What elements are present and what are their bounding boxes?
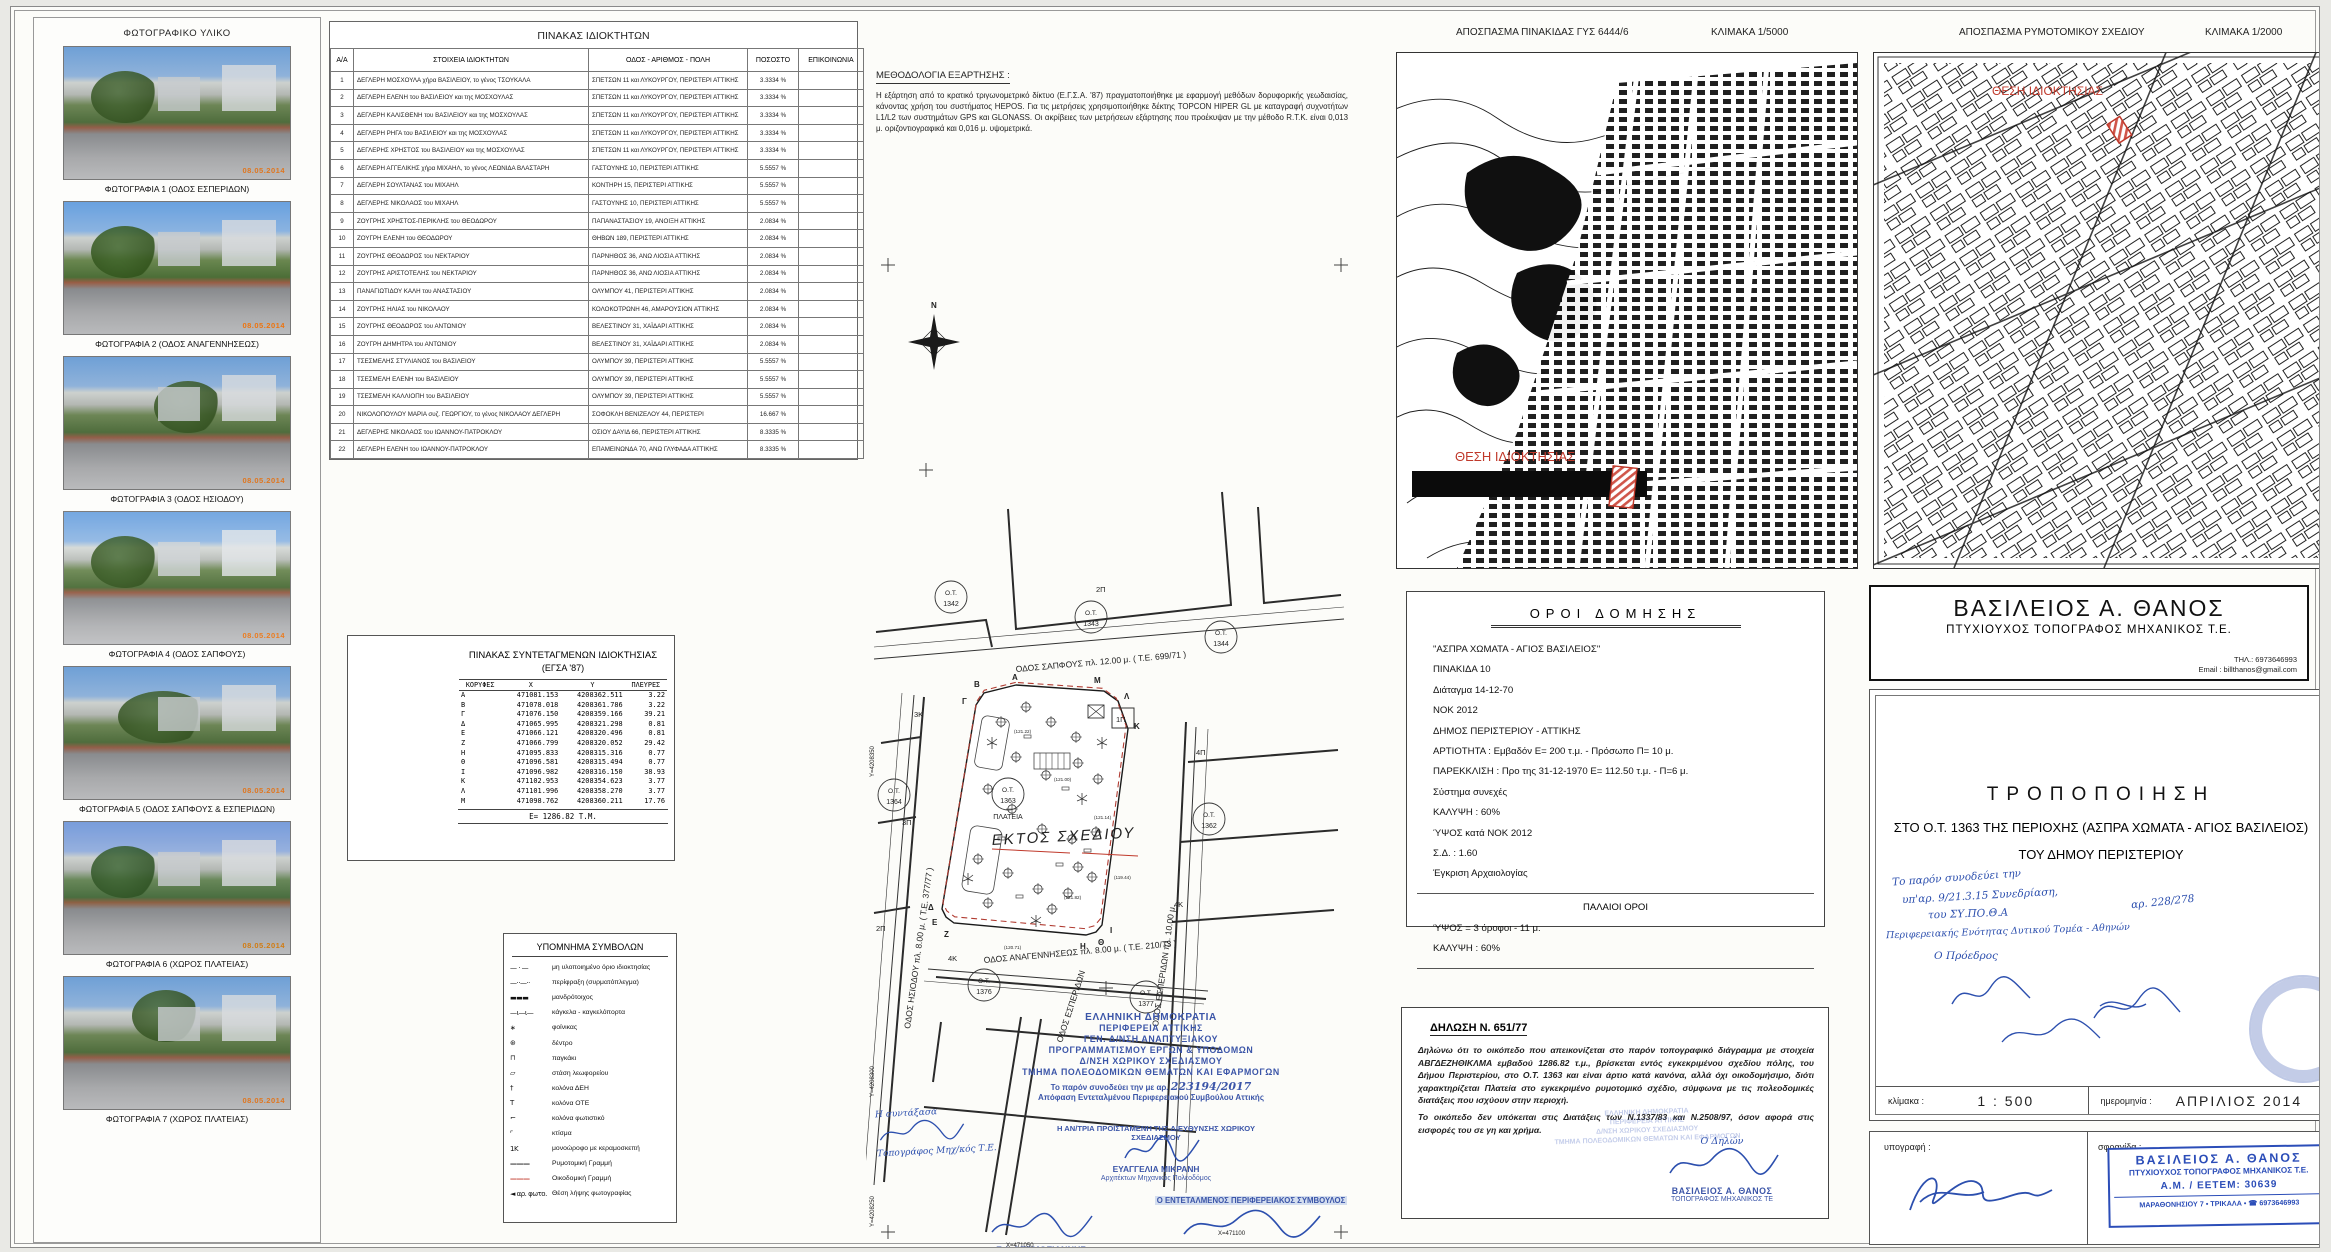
north-arrow-icon: Ν xyxy=(908,301,960,370)
declarant-signature xyxy=(1662,1147,1782,1181)
terms-line: ΑΡΤΙΟΤΗΤΑ : Εμβαδόν Ε= 200 τ.μ. - Πρόσωπ… xyxy=(1407,742,1824,762)
vertex-letter: Ε xyxy=(459,729,501,739)
legend-symbol-icon: — · — xyxy=(510,964,552,972)
svg-text:4Π: 4Π xyxy=(1196,748,1206,757)
svg-text:1342: 1342 xyxy=(943,601,959,608)
photo-date-stamp: 08.05.2014 xyxy=(242,321,285,330)
vertex-letter: Δ xyxy=(459,720,501,730)
director-name: ΕΥΑΓΓΕΛΙΑ ΜΙΚΡΑΝΗ xyxy=(1066,1164,1246,1174)
drawing-subtitle-1: ΣΤΟ Ο.Τ. 1363 ΤΗΣ ΠΕΡΙΟΧΗΣ (ΑΣΠΡΑ ΧΩΜΑΤΑ… xyxy=(1876,820,2320,835)
vertex-x: 471078.018 xyxy=(501,701,560,711)
svg-text:1377: 1377 xyxy=(1138,1001,1154,1008)
coordinate-row: Η 471095.833 4208315.316 0.77 xyxy=(459,749,667,759)
map-townplan-extract: ΘΕΣΗ ΙΔΙΟΚΤΗΣΙΑΣ xyxy=(1873,52,2320,569)
owner-name: ΤΣΕΣΜΕΛΗΣ ΣΤΥΛΙΑΝΟΣ του ΒΑΣΙΛΕΙΟΥ xyxy=(354,353,589,371)
photo-image: 08.05.2014 xyxy=(63,46,291,180)
svg-text:Β: Β xyxy=(974,680,980,689)
legend-item: ⊛ δέντρο xyxy=(504,1035,676,1050)
methodology-title: ΜΕΘΟΔΟΛΟΓΙΑ ΕΞΑΡΤΗΣΗΣ : xyxy=(876,70,1010,84)
legend-symbol-icon: 1Κ xyxy=(510,1145,552,1153)
owner-index: 16 xyxy=(331,335,354,353)
surveyor-signoff: Γ. Ι. ΘΕΡΜΟΓΙΑΝΝΗΣ Αγρονόμος - Τοπογράφο… xyxy=(946,1210,1136,1248)
property-parcel-highlight xyxy=(1609,466,1637,508)
owner-index: 21 xyxy=(331,423,354,441)
svg-text:1362: 1362 xyxy=(1201,823,1217,830)
owner-address: ΓΑΣΤΟΥΝΗΣ 10, ΠΕΡΙΣΤΕΡΙ ΑΤΤΙΚΗΣ xyxy=(589,195,748,213)
vertex-side: 17.76 xyxy=(625,797,667,807)
vertex-x: 471081.153 xyxy=(501,691,560,701)
owner-name: ΝΙΚΟΛΟΠΟΥΛΟΥ ΜΑΡΙΑ συζ. ΓΕΩΡΓΙΟΥ, το γέν… xyxy=(354,406,589,424)
vertex-side: 3.22 xyxy=(625,691,667,701)
owner-contact xyxy=(799,159,864,177)
photo-caption: ΦΩΤΟΓΡΑΦΙΑ 4 (ΟΔΟΣ ΣΑΠΦΟΥΣ) xyxy=(63,649,291,659)
owner-address: ΘΗΒΩΝ 189, ΠΕΡΙΣΤΕΡΙ ΑΤΤΙΚΗΣ xyxy=(589,230,748,248)
legend-label: κολόνα φωτιστικό xyxy=(552,1115,605,1122)
vertex-x: 471096.982 xyxy=(501,768,560,778)
declaration-panel: ΔΗΛΩΣΗ Ν. 651/77 Δηλώνω ότι το οικόπεδο … xyxy=(1401,1007,1829,1219)
terms-line: ΔΗΜΟΣ ΠΕΡΙΣΤΕΡΙΟΥ - ΑΤΤΙΚΗΣ xyxy=(1407,722,1824,742)
vertex-x: 471096.581 xyxy=(501,758,560,768)
owner-name: ΖΟΥΓΡΗΣ ΘΕΟΔΩΡΟΣ του ΝΕΚΤΑΡΙΟΥ xyxy=(354,247,589,265)
svg-text:Υ=4208300: Υ=4208300 xyxy=(870,1065,876,1097)
legend-symbol-icon: ∗ xyxy=(510,1024,552,1032)
owner-contact xyxy=(799,371,864,389)
engineer-email: Email : billthanos@gmail.com xyxy=(2199,665,2297,675)
table-row: 18 ΤΣΕΣΜΕΛΗ ΕΛΕΝΗ του ΒΑΣΙΛΕΙΟΥ ΟΛΥΜΠΟΥ … xyxy=(331,371,864,389)
legend-item: ∗ φοίνικας xyxy=(504,1020,676,1035)
legend-label: κολόνα ΟΤΕ xyxy=(552,1100,589,1107)
director-title: Αρχιτέκτων Μηχανικός Πολεοδόμος xyxy=(1066,1175,1246,1182)
owner-name: ΔΕΓΛΕΡΗ ΑΓΓΕΛΙΚΗΣ χήρα ΜΙΧΑΗΛ, το γένος … xyxy=(354,159,589,177)
table-row: 14 ΖΟΥΓΡΗΣ ΗΛΙΑΣ του ΝΙΚΟΛΑΟΥ ΚΟΛΟΚΟΤΡΩΝ… xyxy=(331,300,864,318)
svg-text:Ζ: Ζ xyxy=(944,930,949,939)
legend-symbol-icon: ⊛ xyxy=(510,1039,552,1047)
owners-table-title: ΠΙΝΑΚΑΣ ΙΔΙΟΚΤΗΤΩΝ xyxy=(330,22,857,48)
owner-contact xyxy=(799,72,864,90)
owner-name: ΔΕΓΛΕΡΗ ΚΑΛΙΣΘΕΝΗ του ΒΑΣΙΛΕΙΟΥ και της … xyxy=(354,107,589,125)
legend-symbol-icon: ——— xyxy=(510,1160,552,1168)
owner-index: 2 xyxy=(331,89,354,107)
svg-text:ΟΔΟΣ ΣΑΠΦΟΥΣ πλ. 12.00 μ. ( Τ: ΟΔΟΣ ΣΑΠΦΟΥΣ πλ. 12.00 μ. ( Τ.Ε. 699/71 … xyxy=(1015,649,1186,674)
svg-text:(120.71): (120.71) xyxy=(1004,945,1022,950)
building-terms-title: ΟΡΟΙ ΔΟΜΗΣΗΣ xyxy=(1407,606,1824,621)
owner-name: ΔΕΓΛΕΡΗ ΡΗΓΑ του ΒΑΣΙΛΕΙΟΥ και της ΜΟΣΧΟ… xyxy=(354,124,589,142)
handwritten-line: αρ. 228/278 xyxy=(2131,893,2195,912)
owner-contact xyxy=(799,212,864,230)
table-row: 3 ΔΕΓΛΕΡΗ ΚΑΛΙΣΘΕΝΗ του ΒΑΣΙΛΕΙΟΥ και τη… xyxy=(331,107,864,125)
legend-symbol-icon: —ι—ι— xyxy=(510,1009,552,1017)
photo-caption: ΦΩΤΟΓΡΑΦΙΑ 3 (ΟΔΟΣ ΗΣΙΟΔΟΥ) xyxy=(63,494,291,504)
legend-symbol-icon: ⌐ xyxy=(510,1114,552,1122)
table-row: 1 ΔΕΓΛΕΡΗ ΜΟΣΧΟΥΛΑ χήρα ΒΑΣΙΛΕΙΟΥ, το γέ… xyxy=(331,72,864,90)
owner-percentage: 3.3334 % xyxy=(748,124,799,142)
owner-address: ΚΟΛΟΚΟΤΡΩΝΗ 46, ΑΜΑΡΟΥΣΙΟΝ ΑΤΤΙΚΗΣ xyxy=(589,300,748,318)
methodology-panel: ΜΕΘΟΔΟΛΟΓΙΑ ΕΞΑΡΤΗΣΗΣ : Η εξάρτηση από τ… xyxy=(876,65,1348,134)
methodology-text: Η εξάρτηση από το κρατικό τριγωνομετρικό… xyxy=(876,90,1348,134)
svg-text:4Κ: 4Κ xyxy=(1174,900,1183,909)
owner-name: ΖΟΥΓΡΗΣ ΗΛΙΑΣ του ΝΙΚΟΛΑΟΥ xyxy=(354,300,589,318)
owner-address: ΒΕΛΕΣΤΙΝΟΥ 31, ΧΑΪΔΑΡΙ ΑΤΤΙΚΗΣ xyxy=(589,318,748,336)
photo-date-stamp: 08.05.2014 xyxy=(242,476,285,485)
photo-item: 08.05.2014 ΦΩΤΟΓΡΑΦΙΑ 7 (ΧΩΡΟΣ ΠΛΑΤΕΙΑΣ) xyxy=(63,976,291,1124)
legend-symbol-icon: † xyxy=(510,1084,552,1092)
old-terms-title: ΠΑΛΑΙΟΙ ΟΡΟΙ xyxy=(1407,902,1824,913)
legend-item: ⌐ κολόνα φωτιστικό xyxy=(504,1111,676,1126)
photo-caption: ΦΩΤΟΓΡΑΦΙΑ 2 (ΟΔΟΣ ΑΝΑΓΕΝΝΗΣΕΩΣ) xyxy=(63,339,291,349)
owner-contact xyxy=(799,107,864,125)
photo-caption: ΦΩΤΟΓΡΑΦΙΑ 7 (ΧΩΡΟΣ ΠΛΑΤΕΙΑΣ) xyxy=(63,1114,291,1124)
legend-item: ▬▬▬ μανδρότοιχος xyxy=(504,990,676,1005)
vertex-x: 471076.150 xyxy=(501,710,560,720)
director-signature xyxy=(1121,1134,1201,1164)
legend-symbol-icon: ◄ αρ. φωτο. xyxy=(510,1190,552,1198)
owner-index: 10 xyxy=(331,230,354,248)
owner-address: ΣΠΕΤΣΩΝ 11 και ΛΥΚΟΥΡΓΟΥ, ΠΕΡΙΣΤΕΡΙ ΑΤΤΙ… xyxy=(589,89,748,107)
owner-percentage: 8.3335 % xyxy=(748,423,799,441)
photo-image: 08.05.2014 xyxy=(63,356,291,490)
table-row: 10 ΖΟΥΓΡΗ ΕΛΕΝΗ του ΘΕΟΔΩΡΟΥ ΘΗΒΩΝ 189, … xyxy=(331,230,864,248)
declaration-paragraph-1: Δηλώνω ότι το οικόπεδο που απεικονίζεται… xyxy=(1418,1044,1814,1107)
legend-item: —··—·· περίφραξη (συρματόπλεγμα) xyxy=(504,975,676,990)
svg-text:2Π: 2Π xyxy=(876,924,886,933)
svg-text:2Π: 2Π xyxy=(1096,585,1106,594)
parcel-area-total: Ε= 1286.82 Τ.Μ. xyxy=(458,809,668,824)
sheet-frame: ΦΩΤΟΓΡΑΦΙΚΟ ΥΛΙΚΟ 08.05.2014 ΦΩΤΟΓΡΑΦΙΑ … xyxy=(10,6,2320,1248)
legend-symbol-icon: Τ xyxy=(510,1099,552,1107)
scale-date-strip: κλίμακα : 1 : 500 ημερομηνία : ΑΠΡΙΛΙΟΣ … xyxy=(1876,1086,2320,1114)
approval-line: ΕΛΛΗΝΙΚΗ ΔΗΜΟΚΡΑΤΙΑ xyxy=(946,1012,1356,1023)
approval-line: ΠΡΟΓΡΑΜΜΑΤΙΣΜΟΥ ΕΡΓΩΝ & ΥΠΟΔΟΜΩΝ xyxy=(946,1045,1356,1056)
owner-percentage: 5.5557 % xyxy=(748,177,799,195)
legend-item: ▱ στάση λεωφορείου xyxy=(504,1066,676,1081)
owner-name: ΖΟΥΓΡΗ ΔΗΜΗΤΡΑ του ΑΝΤΩΝΙΟΥ xyxy=(354,335,589,353)
owner-contact xyxy=(799,124,864,142)
svg-text:Ο.Τ.: Ο.Τ. xyxy=(888,788,900,795)
legend-item: ◄ αρ. φωτο. Θέση λήψης φωτογραφίας xyxy=(504,1186,676,1201)
svg-text:Κ: Κ xyxy=(1134,722,1140,731)
vertex-side: 0.81 xyxy=(625,729,667,739)
svg-text:Ο.Τ.: Ο.Τ. xyxy=(978,978,990,985)
owner-address: ΟΛΥΜΠΟΥ 41, ΠΕΡΙΣΤΕΡΙ ΑΤΤΙΚΗΣ xyxy=(589,283,748,301)
photo-date-stamp: 08.05.2014 xyxy=(242,631,285,640)
drawing-title: ΤΡΟΠΟΠΟΙΗΣΗ xyxy=(1876,784,2320,806)
table-row: 13 ΠΑΝΑΓΙΩΤΙΔΟΥ ΚΑΛΗ του ΑΝΑΣΤΑΣΙΟΥ ΟΛΥΜ… xyxy=(331,283,864,301)
owner-percentage: 2.0834 % xyxy=(748,318,799,336)
svg-text:4Κ: 4Κ xyxy=(948,954,957,963)
owner-index: 19 xyxy=(331,388,354,406)
owner-name: ΔΕΓΛΕΡΗ ΣΟΥΛΤΑΝΑΣ του ΜΙΧΑΗΛ xyxy=(354,177,589,195)
legend-symbol-icon: —··—·· xyxy=(510,979,552,987)
owner-contact xyxy=(799,177,864,195)
owner-contact xyxy=(799,230,864,248)
owner-contact xyxy=(799,318,864,336)
vertex-x: 471095.833 xyxy=(501,749,560,759)
table-row: 11 ΖΟΥΓΡΗΣ ΘΕΟΔΩΡΟΣ του ΝΕΚΤΑΡΙΟΥ ΠΑΡΝΗΘ… xyxy=(331,247,864,265)
col-header-percentage: ΠΟΣΟΣΤΟ xyxy=(748,49,799,72)
owner-contact xyxy=(799,388,864,406)
photo-image: 08.05.2014 xyxy=(63,666,291,800)
legend-item: 1Κ μονοώροφο με κεραμοσκεπή xyxy=(504,1141,676,1156)
legend-item: — · — μη υλοποιημένο όριο ιδιοκτησίας xyxy=(504,960,676,975)
owner-percentage: 5.5557 % xyxy=(748,195,799,213)
vertex-y: 4208320.052 xyxy=(560,739,624,749)
photo-list: 08.05.2014 ΦΩΤΟΓΡΑΦΙΑ 1 (ΟΔΟΣ ΕΣΠΕΡΙΔΩΝ)… xyxy=(34,46,320,1124)
col-header-owner: ΣΤΟΙΧΕΙΑ ΙΔΙΟΚΤΗΤΩΝ xyxy=(354,49,589,72)
owner-contact xyxy=(799,195,864,213)
svg-text:(121.00): (121.00) xyxy=(1054,777,1072,782)
svg-text:1363: 1363 xyxy=(1000,798,1016,805)
parcel-outline xyxy=(942,682,1128,935)
owner-index: 22 xyxy=(331,441,354,459)
owner-index: 17 xyxy=(331,353,354,371)
svg-text:Υ=4208350: Υ=4208350 xyxy=(870,745,876,777)
vertex-letter: Α xyxy=(459,691,501,701)
handwritten-line: Το παρόν συνοδεύει την xyxy=(1892,868,2022,889)
table-row: 9 ΖΟΥΓΡΗΣ ΧΡΗΣΤΟΣ-ΠΕΡΙΚΛΗΣ του ΘΕΟΔΩΡΟΥ … xyxy=(331,212,864,230)
owner-index: 14 xyxy=(331,300,354,318)
terms-line: ΠΙΝΑΚΙΔΑ 10 xyxy=(1407,660,1824,680)
vertex-y: 4208359.166 xyxy=(560,710,624,720)
vertex-y: 4208315.316 xyxy=(560,749,624,759)
author-signature xyxy=(875,1116,966,1147)
svg-text:Ο.Τ.: Ο.Τ. xyxy=(1140,990,1152,997)
declaration-title: ΔΗΛΩΣΗ Ν. 651/77 xyxy=(1430,1022,1527,1036)
owner-percentage: 2.0834 % xyxy=(748,212,799,230)
engineer-header-box: ΒΑΣΙΛΕΙΟΣ Α. ΘΑΝΟΣ ΠΤΥΧΙΟΥΧΟΣ ΤΟΠΟΓΡΑΦΟΣ… xyxy=(1869,585,2309,681)
photo-image: 08.05.2014 xyxy=(63,821,291,955)
table-row: 15 ΖΟΥΓΡΗΣ ΘΕΟΔΩΡΟΣ του ΑΝΤΩΝΙΟΥ ΒΕΛΕΣΤΙ… xyxy=(331,318,864,336)
legend-label: μονοώροφο με κεραμοσκεπή xyxy=(552,1145,640,1152)
vertex-x: 471101.996 xyxy=(501,787,560,797)
photo-item: 08.05.2014 ΦΩΤΟΓΡΑΦΙΑ 3 (ΟΔΟΣ ΗΣΙΟΔΟΥ) xyxy=(63,356,291,504)
coordinate-row: Δ 471065.995 4208321.298 0.81 xyxy=(459,720,667,730)
terms-line: Σύστημα συνεχές xyxy=(1407,783,1824,803)
svg-text:3Κ: 3Κ xyxy=(914,710,923,719)
engineer-contact: ΤΗΛ.: 6973646993 Email : billthanos@gmai… xyxy=(2199,655,2297,674)
map1-graphic: ΘΕΣΗ ΙΔΙΟΚΤΗΣΙΑΣ xyxy=(1397,53,1857,568)
owner-contact xyxy=(799,441,864,459)
terms-line: Σ.Δ. : 1.60 xyxy=(1407,844,1824,864)
table-row: 12 ΖΟΥΓΡΗΣ ΑΡΙΣΤΟΤΕΛΗΣ του ΝΕΚΤΑΡΙΟΥ ΠΑΡ… xyxy=(331,265,864,283)
photo-date-stamp: 08.05.2014 xyxy=(242,166,285,175)
approval-line: ΠΕΡΙΦΕΡΕΙΑ ΑΤΤΙΚΗΣ xyxy=(946,1023,1356,1034)
svg-text:ΟΔΟΣ ΗΣΙΟΔΟΥ πλ. 8.00 μ. ( Τ.: ΟΔΟΣ ΗΣΙΟΔΟΥ πλ. 8.00 μ. ( Τ.Ε. 377/77 ) xyxy=(902,867,935,1030)
legend-symbol-icon: ——— xyxy=(510,1175,552,1183)
coordinates-title: ΠΙΝΑΚΑΣ ΣΥΝΤΕΤΑΓΜΕΝΩΝ ΙΔΙΟΚΤΗΣΙΑΣ xyxy=(458,650,668,661)
svg-text:1364: 1364 xyxy=(886,799,902,806)
map-topographic-extract: ΘΕΣΗ ΙΔΙΟΚΤΗΣΙΑΣ xyxy=(1396,52,1858,569)
coordinates-panel: ΠΙΝΑΚΑΣ ΣΥΝΤΕΤΑΓΜΕΝΩΝ ΙΔΙΟΚΤΗΣΙΑΣ (ΕΓΣΑ … xyxy=(347,635,675,861)
vertex-letter: Μ xyxy=(459,797,501,807)
owner-percentage: 5.5557 % xyxy=(748,371,799,389)
owner-index: 15 xyxy=(331,318,354,336)
old-terms-line: ΎΨΟΣ = 3 όροφοι - 11 μ. xyxy=(1407,919,1824,939)
legend-label: παγκάκι xyxy=(552,1055,576,1062)
owner-contact xyxy=(799,283,864,301)
svg-text:Υ=4208250: Υ=4208250 xyxy=(870,1195,876,1227)
table-row: 4 ΔΕΓΛΕΡΗ ΡΗΓΑ του ΒΑΣΙΛΕΙΟΥ και της ΜΟΣ… xyxy=(331,124,864,142)
svg-text:Η: Η xyxy=(1080,942,1086,951)
legend-label: Οικοδομική Γραμμή xyxy=(552,1175,611,1182)
handwritten-line: Περιφερειακής Ενότητας Δυτικού Τομέα - Α… xyxy=(1886,922,2130,942)
table-row: 19 ΤΣΕΣΜΕΛΗ ΚΑΛΛΙΟΠΗ του ΒΑΣΙΛΕΙΟΥ ΟΛΥΜΠ… xyxy=(331,388,864,406)
owner-address: ΣΠΕΤΣΩΝ 11 και ΛΥΚΟΥΡΓΟΥ, ΠΕΡΙΣΤΕΡΙ ΑΤΤΙ… xyxy=(589,107,748,125)
engineer-phone: ΤΗΛ.: 6973646993 xyxy=(2199,655,2297,665)
svg-text:Γ: Γ xyxy=(962,697,967,706)
owner-index: 18 xyxy=(331,371,354,389)
coordinate-row: Λ 471101.996 4208358.270 3.77 xyxy=(459,787,667,797)
crd-col-side: ΠΛΕΥΡΕΣ xyxy=(625,680,667,691)
owner-name: ΤΣΕΣΜΕΛΗ ΚΑΛΛΙΟΠΗ του ΒΑΣΙΛΕΙΟΥ xyxy=(354,388,589,406)
svg-text:Λ: Λ xyxy=(1124,692,1130,701)
vertex-x: 471102.953 xyxy=(501,777,560,787)
owner-address: ΒΕΛΕΣΤΙΝΟΥ 31, ΧΑΪΔΑΡΙ ΑΤΤΙΚΗΣ xyxy=(589,335,748,353)
building-terms-panel: ΟΡΟΙ ΔΟΜΗΣΗΣ "ΑΣΠΡΑ ΧΩΜΑΤΑ - ΑΓΙΟΣ ΒΑΣΙΛ… xyxy=(1406,591,1825,927)
owner-index: 12 xyxy=(331,265,354,283)
scanned-survey-sheet: ΦΩΤΟΓΡΑΦΙΚΟ ΥΛΙΚΟ 08.05.2014 ΦΩΤΟΓΡΑΦΙΑ … xyxy=(0,0,2331,1252)
signature-stamp-box: υπογραφή : σφραγίδα : ΒΑΣΙΛΕΙΟΣ Α. ΘΑΝΟΣ… xyxy=(1869,1131,2320,1245)
owner-name: ΖΟΥΓΡΗΣ ΧΡΗΣΤΟΣ-ΠΕΡΙΚΛΗΣ του ΘΕΟΔΩΡΟΥ xyxy=(354,212,589,230)
photo-date-stamp: 08.05.2014 xyxy=(242,1096,285,1105)
owners-table: Α/Α ΣΤΟΙΧΕΙΑ ΙΔΙΟΚΤΗΤΩΝ ΟΔΟΣ - ΑΡΙΘΜΟΣ -… xyxy=(330,48,864,459)
owner-index: 20 xyxy=(331,406,354,424)
owner-contact xyxy=(799,353,864,371)
vertex-x: 471066.799 xyxy=(501,739,560,749)
map1-title: ΑΠΟΣΠΑΣΜΑ ΠΙΝΑΚΙΔΑΣ ΓΥΣ 6444/6 xyxy=(1456,27,1629,38)
owner-percentage: 5.5557 % xyxy=(748,388,799,406)
legend-items: — · — μη υλοποιημένο όριο ιδιοκτησίας —·… xyxy=(504,960,676,1202)
owner-percentage: 2.0834 % xyxy=(748,247,799,265)
vertex-side: 0.77 xyxy=(625,758,667,768)
vertex-letter: Β xyxy=(459,701,501,711)
owner-contact xyxy=(799,406,864,424)
legend-label: Ρυμοτομική Γραμμή xyxy=(552,1160,612,1167)
vertex-x: 471098.762 xyxy=(501,797,560,807)
surveyor-signature xyxy=(986,1210,1096,1240)
svg-text:1Π: 1Π xyxy=(1116,715,1126,724)
svg-text:Ο.Τ.: Ο.Τ. xyxy=(1215,630,1227,637)
vertex-y: 4208358.270 xyxy=(560,787,624,797)
owner-name: ΔΕΓΛΕΡΗ ΕΛΕΝΗ του ΙΩΑΝΝΟΥ-ΠΑΤΡΟΚΛΟΥ xyxy=(354,441,589,459)
photo-panel: ΦΩΤΟΓΡΑΦΙΚΟ ΥΛΙΚΟ 08.05.2014 ΦΩΤΟΓΡΑΦΙΑ … xyxy=(33,17,321,1243)
photo-panel-title: ΦΩΤΟΓΡΑΦΙΚΟ ΥΛΙΚΟ xyxy=(34,28,320,39)
owner-address: ΣΠΕΤΣΩΝ 11 και ΛΥΚΟΥΡΓΟΥ, ΠΕΡΙΣΤΕΡΙ ΑΤΤΙ… xyxy=(589,142,748,160)
owner-index: 4 xyxy=(331,124,354,142)
owner-index: 13 xyxy=(331,283,354,301)
owner-address: ΓΑΣΤΟΥΝΗΣ 10, ΠΕΡΙΣΤΕΡΙ ΑΤΤΙΚΗΣ xyxy=(589,159,748,177)
owner-percentage: 2.0834 % xyxy=(748,283,799,301)
col-header-contact: ΕΠΙΚΟΙΝΩΝΙΑ xyxy=(799,49,864,72)
photo-image: 08.05.2014 xyxy=(63,976,291,1110)
owner-contact xyxy=(799,265,864,283)
legend-label: περίφραξη (συρματόπλεγμα) xyxy=(552,979,639,986)
owner-address: ΟΛΥΜΠΟΥ 39, ΠΕΡΙΣΤΕΡΙ ΑΤΤΙΚΗΣ xyxy=(589,353,748,371)
legend-item: ⌜ κτίσμα xyxy=(504,1126,676,1141)
vertex-side: 0.81 xyxy=(625,720,667,730)
vertex-letter: Ι xyxy=(459,768,501,778)
svg-text:1376: 1376 xyxy=(976,989,992,996)
vertex-y: 4208360.211 xyxy=(560,797,624,807)
old-terms-lines: ΎΨΟΣ = 3 όροφοι - 11 μ.ΚΑΛΥΨΗ : 60% xyxy=(1407,919,1824,960)
owners-table-panel: ΠΙΝΑΚΑΣ ΙΔΙΟΚΤΗΤΩΝ Α/Α ΣΤΟΙΧΕΙΑ ΙΔΙΟΚΤΗΤ… xyxy=(329,21,858,460)
legend-title: ΥΠΟΜΝΗΜΑ ΣΥΜΒΟΛΩΝ xyxy=(512,942,668,957)
coordinates-table: ΚΟΡΥΦΕΣ Χ Υ ΠΛΕΥΡΕΣ Α 471081.153 4208362… xyxy=(459,679,667,806)
vertex-side: 3.77 xyxy=(625,787,667,797)
photo-caption: ΦΩΤΟΓΡΑΦΙΑ 1 (ΟΔΟΣ ΕΣΠΕΡΙΔΩΝ) xyxy=(63,184,291,194)
vertex-y: 4208320.496 xyxy=(560,729,624,739)
svg-text:Ο.Τ.: Ο.Τ. xyxy=(1203,812,1215,819)
handwritten-signature-1 xyxy=(1946,974,2036,1014)
photo-item: 08.05.2014 ΦΩΤΟΓΡΑΦΙΑ 6 (ΧΩΡΟΣ ΠΛΑΤΕΙΑΣ) xyxy=(63,821,291,969)
legend-label: στάση λεωφορείου xyxy=(552,1070,608,1077)
map2-scale: ΚΛΙΜΑΚΑ 1/2000 xyxy=(2205,27,2282,38)
scale-cell: κλίμακα : 1 : 500 xyxy=(1876,1087,2089,1114)
owner-percentage: 3.3334 % xyxy=(748,72,799,90)
photo-item: 08.05.2014 ΦΩΤΟΓΡΑΦΙΑ 2 (ΟΔΟΣ ΑΝΑΓΕΝΝΗΣΕ… xyxy=(63,201,291,349)
table-row: 5 ΔΕΓΛΕΡΗΣ ΧΡΗΣΤΟΣ του ΒΑΣΙΛΕΙΟΥ και της… xyxy=(331,142,864,160)
vertex-x: 471065.995 xyxy=(501,720,560,730)
owner-address: ΣΠΕΤΣΩΝ 11 και ΛΥΚΟΥΡΓΟΥ, ΠΕΡΙΣΤΕΡΙ ΑΤΤΙ… xyxy=(589,124,748,142)
col-header-address: ΟΔΟΣ - ΑΡΙΘΜΟΣ - ΠΟΛΗ xyxy=(589,49,748,72)
regional-approval-stamp: ΕΛΛΗΝΙΚΗ ΔΗΜΟΚΡΑΤΙΑΠΕΡΙΦΕΡΕΙΑ ΑΤΤΙΚΗΣΓΕΝ… xyxy=(946,1012,1356,1248)
engineer-signature xyxy=(1900,1158,2060,1228)
coordinate-row: Γ 471076.150 4208359.166 39.21 xyxy=(459,710,667,720)
map1-scale: ΚΛΙΜΑΚΑ 1/5000 xyxy=(1711,27,1788,38)
owner-contact xyxy=(799,247,864,265)
owner-index: 6 xyxy=(331,159,354,177)
vertex-x: 471066.121 xyxy=(501,729,560,739)
photo-caption: ΦΩΤΟΓΡΑΦΙΑ 5 (ΟΔΟΣ ΣΑΠΦΟΥΣ & ΕΣΠΕΡΙΔΩΝ) xyxy=(63,804,291,814)
owner-address: ΟΛΥΜΠΟΥ 39, ΠΕΡΙΣΤΕΡΙ ΑΤΤΙΚΗΣ xyxy=(589,371,748,389)
coordinate-row: Κ 471102.953 4208354.623 3.77 xyxy=(459,777,667,787)
photo-item: 08.05.2014 ΦΩΤΟΓΡΑΦΙΑ 4 (ΟΔΟΣ ΣΑΠΦΟΥΣ) xyxy=(63,511,291,659)
vertex-letter: Λ xyxy=(459,787,501,797)
crd-col-y: Υ xyxy=(560,680,624,691)
photo-date-stamp: 08.05.2014 xyxy=(242,941,285,950)
vertex-side: 39.21 xyxy=(625,710,667,720)
owner-percentage: 16.667 % xyxy=(748,406,799,424)
terms-line: Διάταγμα 14-12-70 xyxy=(1407,681,1824,701)
owner-address: ΠΑΠΑΝΑΣΤΑΣΙΟΥ 19, ΑΝΟΙΞΗ ΑΤΤΙΚΗΣ xyxy=(589,212,748,230)
photo-item: 08.05.2014 ΦΩΤΟΓΡΑΦΙΑ 1 (ΟΔΟΣ ΕΣΠΕΡΙΔΩΝ) xyxy=(63,46,291,194)
vertex-letter: Ζ xyxy=(459,739,501,749)
vertex-y: 4208362.511 xyxy=(560,691,624,701)
approval-line: ΓΕΝ. Δ/ΝΣΗ ΑΝΑΠΤΥΞΙΑΚΟΥ xyxy=(946,1034,1356,1045)
table-row: 2 ΔΕΓΛΕΡΗ ΕΛΕΝΗ του ΒΑΣΙΛΕΙΟΥ και της ΜΟ… xyxy=(331,89,864,107)
owner-percentage: 2.0834 % xyxy=(748,230,799,248)
terms-line: ΝΟΚ 2012 xyxy=(1407,701,1824,721)
table-row: 7 ΔΕΓΛΕΡΗ ΣΟΥΛΤΑΝΑΣ του ΜΙΧΑΗΛ ΚΟΝΤΗΡΗ 1… xyxy=(331,177,864,195)
drawing-title-box: ΤΡΟΠΟΠΟΙΗΣΗ ΣΤΟ Ο.Τ. 1363 ΤΗΣ ΠΕΡΙΟΧΗΣ (… xyxy=(1869,689,2320,1121)
svg-text:Ε: Ε xyxy=(932,918,938,927)
vertex-side: 0.77 xyxy=(625,749,667,759)
vertex-side: 3.77 xyxy=(625,777,667,787)
owner-name: ΔΕΓΛΕΡΗΣ ΝΙΚΟΛΑΟΣ του ΙΩΑΝΝΟΥ-ΠΑΤΡΟΚΛΟΥ xyxy=(354,423,589,441)
owner-address: ΠΑΡΝΗΘΟΣ 36, ΑΝΩ ΛΙΟΣΙΑ ΑΤΤΙΚΗΣ xyxy=(589,247,748,265)
terms-line: ΠΑΡΕΚΚΛΙΣΗ : Προ της 31-12-1970 Ε= 112.5… xyxy=(1407,762,1824,782)
photo-image: 08.05.2014 xyxy=(63,511,291,645)
coordinate-row: Ζ 471066.799 4208320.052 29.42 xyxy=(459,739,667,749)
owner-name: ΖΟΥΓΡΗΣ ΑΡΙΣΤΟΤΕΛΗΣ του ΝΕΚΤΑΡΙΟΥ xyxy=(354,265,589,283)
owner-name: ΔΕΓΛΕΡΗ ΕΛΕΝΗ του ΒΑΣΙΛΕΙΟΥ και της ΜΟΣΧ… xyxy=(354,89,589,107)
approval-line: Δ/ΝΣΗ ΧΩΡΙΚΟΥ ΣΧΕΔΙΑΣΜΟΥ xyxy=(946,1056,1356,1067)
handwritten-line: Ο Πρόεδρος xyxy=(1934,950,1998,962)
legend-label: μη υλοποιημένο όριο ιδιοκτησίας xyxy=(552,964,650,971)
owner-contact xyxy=(799,300,864,318)
property-location-label: ΘΕΣΗ ΙΔΙΟΚΤΗΣΙΑΣ xyxy=(1455,449,1575,464)
map2-graphic: ΘΕΣΗ ΙΔΙΟΚΤΗΣΙΑΣ xyxy=(1874,53,2320,568)
approval-header-lines: ΕΛΛΗΝΙΚΗ ΔΗΜΟΚΡΑΤΙΑΠΕΡΙΦΕΡΕΙΑ ΑΤΤΙΚΗΣΓΕΝ… xyxy=(946,1012,1356,1078)
